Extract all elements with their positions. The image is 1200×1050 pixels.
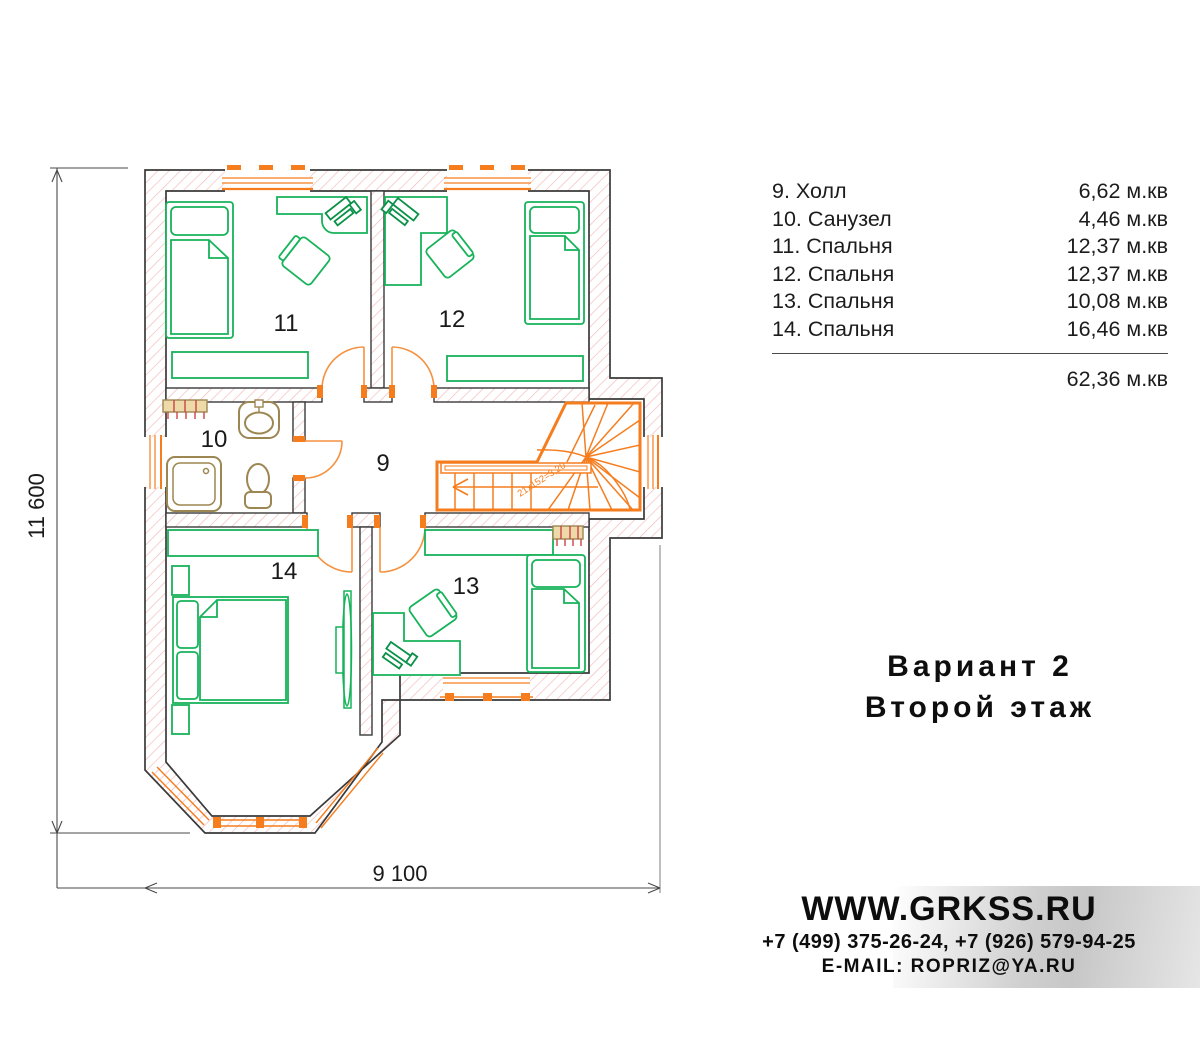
website-url: WWW.GRKSS.RU	[698, 891, 1200, 927]
wardrobe	[447, 356, 583, 381]
room-label-10: 10	[201, 426, 228, 453]
room-14-furniture	[168, 530, 352, 734]
legend-room-name: 11. Спальня	[772, 233, 893, 261]
legend-room-name: 12. Спальня	[772, 261, 894, 289]
legend-row: 10. Санузел4,46 м.кв	[772, 206, 1168, 234]
plan-title-line2: Второй этаж	[770, 687, 1190, 728]
room-label-11: 11	[274, 310, 299, 337]
legend-room-area: 10,08 м.кв	[1067, 288, 1168, 316]
legend-total-area: 62,36 м.кв	[772, 367, 1168, 392]
stairs: 21x152=3,20	[437, 403, 640, 510]
blanket	[530, 236, 579, 319]
legend-room-name: 14. Спальня	[772, 316, 894, 344]
room-12-furniture	[382, 194, 584, 381]
legend-row: 14. Спальня16,46 м.кв	[772, 316, 1168, 344]
nightstand	[172, 705, 189, 734]
radiator	[163, 400, 207, 419]
chair	[276, 232, 331, 286]
legend-row: 9. Холл6,62 м.кв	[772, 178, 1168, 206]
plan-title-line1: Вариант 2	[770, 646, 1190, 687]
room-label-9: 9	[376, 450, 389, 477]
room-13-furniture	[373, 526, 585, 675]
legend-room-name: 9. Холл	[772, 178, 847, 206]
wardrobe	[172, 352, 308, 378]
toilet	[245, 464, 271, 508]
room-11-furniture	[166, 195, 367, 378]
legend-room-name: 10. Санузел	[772, 206, 892, 234]
blanket	[171, 240, 228, 334]
area-legend: 9. Холл6,62 м.кв 10. Санузел4,46 м.кв 11…	[772, 178, 1168, 392]
legend-row: 11. Спальня12,37 м.кв	[772, 233, 1168, 261]
chair	[425, 228, 476, 279]
wardrobe	[425, 530, 553, 555]
shower	[167, 457, 221, 511]
chair	[408, 587, 459, 638]
door-jambs	[293, 385, 437, 528]
pillow	[532, 560, 580, 587]
legend-room-area: 4,46 м.кв	[1079, 206, 1168, 234]
contact-block: WWW.GRKSS.RU +7 (499) 375-26-24, +7 (926…	[698, 891, 1200, 979]
legend-room-area: 12,37 м.кв	[1067, 261, 1168, 289]
pillow	[177, 652, 198, 699]
nightstand	[172, 566, 189, 595]
legend-room-area: 12,37 м.кв	[1067, 233, 1168, 261]
phone-numbers: +7 (499) 375-26-24, +7 (926) 579-94-25	[698, 930, 1200, 955]
radiator	[553, 526, 583, 546]
legend-row: 13. Спальня10,08 м.кв	[772, 288, 1168, 316]
room-label-14: 14	[271, 558, 298, 585]
pillow	[171, 207, 228, 235]
mirror-unit	[336, 591, 352, 708]
legend-room-area: 16,46 м.кв	[1067, 316, 1168, 344]
dimension-height-label: 11 600	[24, 473, 49, 539]
wardrobe	[168, 530, 318, 556]
legend-row: 12. Спальня12,37 м.кв	[772, 261, 1168, 289]
room-label-12: 12	[439, 306, 466, 333]
page: 21x152=3,20	[0, 0, 1200, 1050]
legend-room-area: 6,62 м.кв	[1079, 178, 1168, 206]
blanket	[200, 600, 286, 700]
plan-title: Вариант 2 Второй этаж	[770, 646, 1190, 728]
sink	[239, 400, 279, 438]
floor-plan-svg: 21x152=3,20	[0, 0, 720, 1050]
legend-divider	[772, 353, 1168, 354]
pillow	[530, 207, 579, 233]
blanket	[532, 589, 579, 668]
legend-room-name: 13. Спальня	[772, 288, 894, 316]
email-address: E-MAIL: ROPRIZ@YA.RU	[698, 955, 1200, 979]
dimension-width-label: 9 100	[372, 861, 427, 886]
room-10-fixtures	[163, 400, 279, 511]
room-label-13: 13	[453, 573, 480, 600]
pillow	[177, 601, 198, 648]
